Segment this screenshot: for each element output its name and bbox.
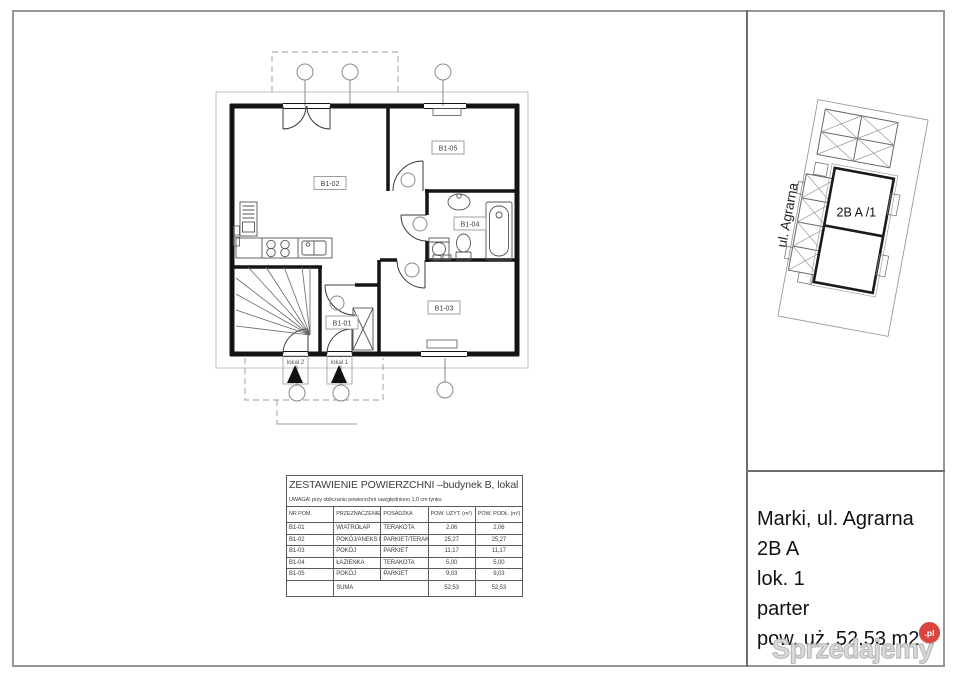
- garage-block: [817, 109, 898, 168]
- table-row: B1-03 POKÓJ PARKIET 11,17 11,17: [287, 546, 523, 558]
- area-table-title: ZESTAWIENIE POWIERZCHNI –budynek B, loka…: [287, 476, 523, 496]
- site-plan-drawing: 2B A /1 ul. Agrarna: [740, 75, 960, 365]
- washing-machine: [429, 238, 449, 259]
- address-line-1: Marki, ul. Agrarna 2B A: [757, 504, 942, 564]
- axis-marker: [297, 64, 313, 80]
- address-block: Marki, ul. Agrarna 2B A lok. 1 parter po…: [757, 504, 942, 654]
- axis-marker: [435, 64, 451, 80]
- room-label-b1-04: B1-04: [454, 217, 486, 230]
- axis-marker: [342, 64, 358, 80]
- table-row: B1-04 ŁAZIENKA TERAKOTA 5,00 5,00: [287, 557, 523, 569]
- svg-text:B1-01: B1-01: [333, 321, 352, 328]
- address-line-2: lok. 1: [757, 564, 942, 594]
- table-row: B1-02 POKÓJ/ANEKS KUCHENNY PARKIET/TERAK…: [287, 534, 523, 546]
- room-label-b1-05: B1-05: [432, 141, 464, 154]
- terrace-door-leaves: [283, 106, 330, 129]
- sum-label: SUMA: [334, 580, 428, 596]
- watermark-brand: Sprzedajemy: [772, 636, 933, 662]
- axis-marker: [437, 382, 453, 398]
- watermark-tld: .pl: [925, 628, 935, 638]
- vertical-divider: [746, 10, 748, 667]
- bathtub: [486, 202, 512, 260]
- terrace-door-arc: [283, 106, 306, 129]
- area-table-note: UWAGA! przy obliczaniu powierzchni uwzgl…: [287, 495, 523, 507]
- axis-marker: [333, 385, 349, 401]
- table-row: B1-01 WIATROŁAP TERAKOTA 2,06 2,06: [287, 523, 523, 535]
- entrance-label-lokal-1: lokal 1: [331, 360, 349, 366]
- staircase: [236, 267, 310, 335]
- room-label-b1-01: B1-01: [326, 316, 358, 329]
- sink: [302, 241, 326, 255]
- room-label-b1-03: B1-03: [428, 301, 460, 314]
- toilet: [456, 234, 471, 260]
- area-table-header: NR POM. PRZEZNACZENIE POSADZKA POW. UŻYT…: [287, 507, 523, 523]
- kitchen-fixtures: [236, 202, 332, 258]
- svg-text:B1-05: B1-05: [439, 146, 458, 153]
- svg-text:B1-04: B1-04: [461, 222, 480, 229]
- area-table: ZESTAWIENIE POWIERZCHNI –budynek B, loka…: [286, 475, 523, 597]
- table-sum-row: SUMA 52,53 52,53: [287, 580, 523, 596]
- col-pow-podl: POW. PODŁ. (m²): [475, 507, 522, 523]
- col-pow-uzyt: POW. UŻYT. (m²): [428, 507, 475, 523]
- col-nr-pom: NR POM.: [287, 507, 334, 523]
- entrance-door-lokal-1: [327, 329, 352, 354]
- floor-plan-drawing: lokal 2 lokal 1 B1-02 B1-05 B1-04 B1-03 …: [0, 0, 748, 460]
- table-row: B1-05 POKÓJ PARKIET 9,03 9,03: [287, 569, 523, 581]
- room-label-b1-02: B1-02: [314, 177, 346, 190]
- unit-label: 2B A /1: [837, 206, 877, 220]
- stove: [267, 240, 289, 256]
- col-posadzka: POSADZKA: [381, 507, 428, 523]
- horizontal-divider: [748, 470, 945, 472]
- svg-text:B1-02: B1-02: [321, 181, 340, 188]
- col-przeznaczenie: PRZEZNACZENIE: [334, 507, 381, 523]
- terrace-door-arc: [307, 106, 330, 129]
- washbasin: [448, 194, 470, 210]
- door-b1-01: [325, 285, 355, 315]
- entrances: lokal 2 lokal 1: [283, 356, 352, 384]
- axis-markers: [289, 64, 453, 401]
- listing-floorplan-page: { "floor_plan": { "rooms": [ {"id": "B1-…: [0, 0, 960, 679]
- watermark-pl-badge: .pl: [919, 622, 940, 643]
- entrance-label-lokal-2: lokal 2: [287, 360, 305, 366]
- svg-text:B1-03: B1-03: [435, 306, 454, 313]
- axis-marker: [289, 385, 305, 401]
- interior-walls: [232, 106, 517, 356]
- radiators: [234, 109, 462, 349]
- door-b1-03: [397, 260, 425, 288]
- address-line-3: parter: [757, 594, 942, 624]
